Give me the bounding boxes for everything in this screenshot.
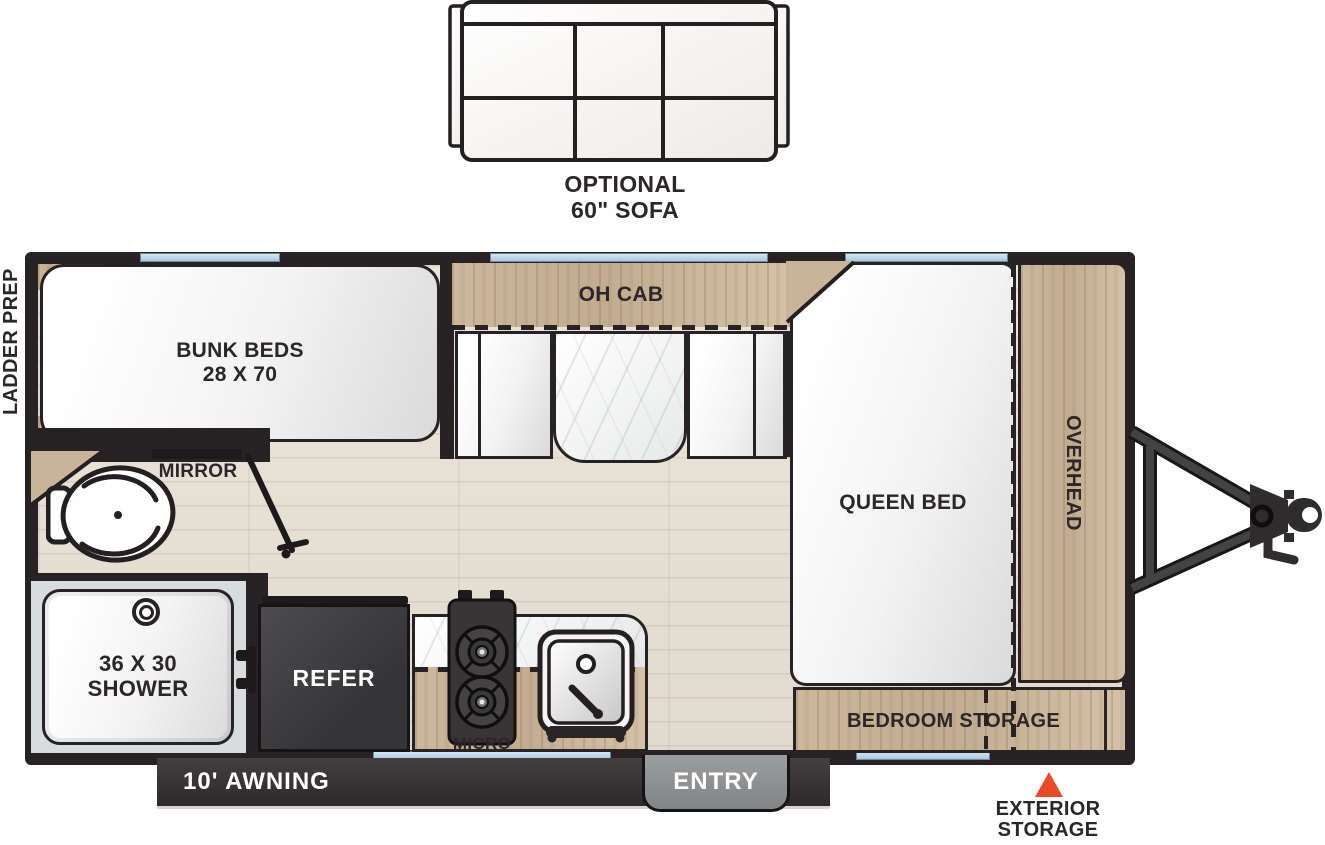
awning-label: 10' AWNING [157,768,330,796]
kitchen-sink [534,626,638,744]
bench-left-divider [478,334,481,456]
optional-sofa-label-line1: OPTIONAL [520,172,730,198]
toilet [46,464,178,566]
storage-divider-dashed [984,690,988,750]
ladder-prep-label: LADDER PREP [0,252,26,432]
window-bed [845,253,1008,262]
trailer-hitch [1128,414,1325,606]
window-bunk [140,253,280,262]
window-dinette [490,253,768,262]
refer: REFER [258,604,410,752]
bedroom-storage-label: BEDROOM STORAGE [796,710,1111,732]
shower-label-line2: SHOWER [45,677,231,702]
cooktop [446,588,518,748]
optional-sofa-label: OPTIONAL 60" SOFA [520,172,730,224]
exterior-storage-label-line2: STORAGE [973,820,1123,841]
micro-label: MICRO [444,734,520,753]
queen-bed: QUEEN BED [790,262,1016,686]
queen-bed-label: QUEEN BED [793,491,1013,515]
bunk-beds-label-line1: BUNK BEDS [43,339,437,363]
dinette-bench-right [687,331,787,459]
storage-divider-solid [1104,690,1107,750]
shower-drain [132,598,160,626]
entry-door: ENTRY [642,755,790,812]
bed-corner-wedge [786,261,858,325]
dinette-table [553,331,687,463]
exterior-storage-label-line1: EXTERIOR [973,799,1123,820]
oh-cab-label: OH CAB [579,283,664,307]
rv-floorplan: OPTIONAL 60" SOFA LADDER PREP BUNK BEDS … [0,0,1325,845]
bedroom-storage: BEDROOM STORAGE [793,687,1128,753]
optional-sofa-drawing [448,0,790,166]
overhead-dashed-line [1011,264,1016,753]
bunk-beds-label-line2: 28 X 70 [43,363,437,387]
entry-label: ENTRY [673,768,758,796]
overhead-cabinet: OVERHEAD [1018,262,1128,683]
dinette-bench-left [455,331,553,459]
overhead-label: OVERHEAD [1062,415,1084,531]
refer-label: REFER [293,665,376,692]
oh-cab-dashed-line [452,325,790,330]
mirror-bar [152,449,242,459]
shower-label-line1: 36 X 30 [45,652,231,677]
bench-right-divider [753,334,756,456]
exterior-storage-label: EXTERIOR STORAGE [973,799,1123,841]
oh-cab: OH CAB [452,263,790,327]
optional-sofa-label-line2: 60" SOFA [520,198,730,224]
exterior-storage-arrow-icon [1035,772,1063,797]
bunk-beds: BUNK BEDS 28 X 70 [40,264,440,442]
bath-door [238,448,310,566]
